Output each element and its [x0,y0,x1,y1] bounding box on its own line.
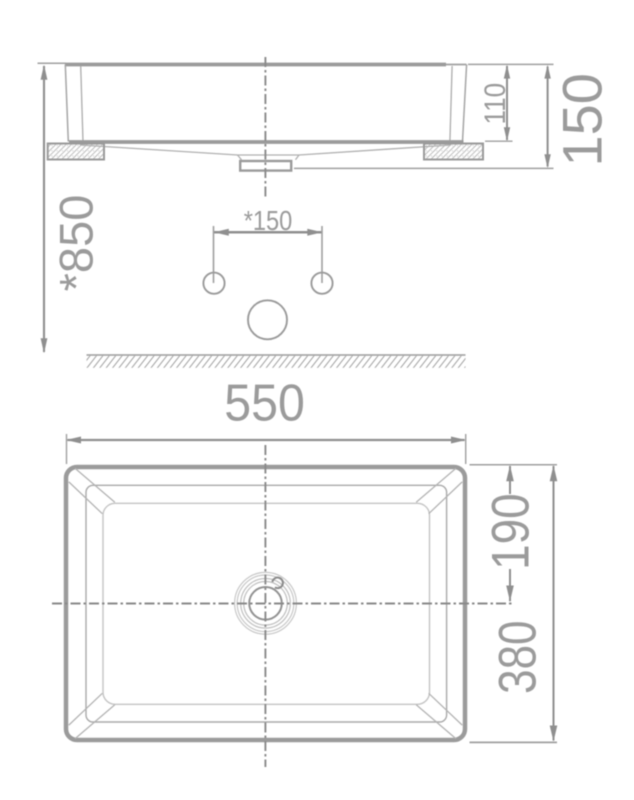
svg-text:150: 150 [551,73,614,166]
svg-text:190: 190 [480,493,540,570]
svg-text:*150: *150 [244,206,293,236]
svg-text:*850: *850 [50,195,103,292]
svg-text:110: 110 [478,83,511,125]
svg-text:380: 380 [489,621,548,694]
svg-text:550: 550 [224,374,305,432]
